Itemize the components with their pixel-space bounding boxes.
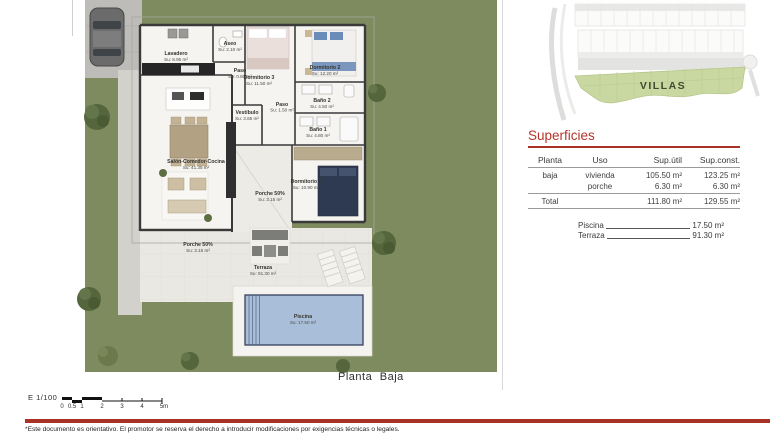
cell-sup-const: 123.25 m² bbox=[682, 171, 740, 180]
bush-icon bbox=[98, 346, 118, 366]
room-area-porche-a: Su: 3.15 m² bbox=[258, 197, 282, 202]
room-area-dormitorio3: Su: 11.50 m² bbox=[246, 81, 272, 86]
cell-uso: porche bbox=[572, 182, 628, 191]
extra-row-terraza: Terraza 91.30 m² bbox=[578, 231, 724, 240]
cell-planta: baja bbox=[528, 171, 572, 180]
room-area-dormitorio1: Su: 10.90 m² bbox=[293, 185, 320, 190]
kitchen-counter bbox=[142, 63, 215, 75]
extra-row-piscina: Piscina 17.50 m² bbox=[578, 221, 724, 230]
scale-tick: 5m bbox=[160, 404, 168, 410]
header-uso: Uso bbox=[572, 155, 628, 165]
scale-label: E 1/100 bbox=[28, 393, 57, 402]
road bbox=[750, 70, 758, 96]
superficies-table: Planta Uso Sup.útil Sup.const. baja vivi… bbox=[528, 152, 740, 209]
room-area-salon: Su: 41.35 m² bbox=[183, 165, 210, 170]
scale-tick: 2 bbox=[100, 404, 103, 410]
total-label: Total bbox=[528, 197, 572, 206]
table-row: baja vivienda 105.50 m² 123.25 m² bbox=[528, 168, 740, 182]
total-sup-const: 129.55 m² bbox=[682, 197, 740, 206]
extra-value: 91.30 m² bbox=[692, 231, 724, 240]
kitchen-island bbox=[166, 88, 210, 110]
footer-divider bbox=[25, 419, 770, 423]
living-room-set bbox=[159, 169, 212, 222]
road bbox=[561, 4, 575, 114]
outdoor-lounge-set bbox=[250, 228, 290, 264]
scale-tick: 0 bbox=[60, 404, 63, 410]
table-total-row: Total 111.80 m² 129.55 m² bbox=[528, 194, 740, 208]
palm-tree-icon bbox=[77, 287, 101, 311]
bed-bedroom3 bbox=[247, 27, 289, 69]
table-divider bbox=[528, 208, 740, 209]
scale-tick: 4 bbox=[140, 404, 143, 410]
superficies-title: Superficies bbox=[528, 128, 740, 148]
cell-sup-util: 105.50 m² bbox=[628, 171, 682, 180]
plot-row-top bbox=[575, 4, 745, 26]
floor-plan: Lavadero Su: 8.95 m² Aseo Su: 2.10 m² Pa… bbox=[0, 0, 505, 392]
palm-tree-icon bbox=[372, 231, 396, 255]
car-icon bbox=[90, 8, 124, 66]
scale-tick: 3 bbox=[120, 404, 123, 410]
bush-icon bbox=[181, 352, 199, 370]
extra-label: Terraza bbox=[578, 231, 605, 240]
leader-line bbox=[606, 228, 691, 229]
room-area-paso2: Su: 1.50 m² bbox=[270, 108, 294, 113]
total-sup-util: 111.80 m² bbox=[628, 197, 682, 206]
header-sup-util: Sup.útil bbox=[628, 155, 682, 165]
cell-uso: vivienda bbox=[572, 171, 628, 180]
extras-list: Piscina 17.50 m² Terraza 91.30 m² bbox=[578, 221, 724, 241]
room-area-dormitorio2: Su: 12.20 m² bbox=[312, 71, 339, 76]
room-area-vestibulo: Su: 3.65 m² bbox=[235, 116, 259, 121]
plan-caption: Planta Baja bbox=[338, 371, 404, 383]
table-header-row: Planta Uso Sup.útil Sup.const. bbox=[528, 152, 740, 167]
scale-bar bbox=[62, 396, 168, 406]
cell-planta bbox=[528, 182, 572, 191]
plan-sheet: Lavadero Su: 8.95 m² Aseo Su: 2.10 m² Pa… bbox=[0, 0, 770, 433]
side-path bbox=[118, 70, 142, 315]
table-row: porche 6.30 m² 6.30 m² bbox=[528, 182, 740, 193]
header-planta: Planta bbox=[528, 155, 572, 165]
room-area-aseo: Su: 2.10 m² bbox=[218, 47, 242, 52]
header-sup-const: Sup.const. bbox=[682, 155, 740, 165]
extra-label: Piscina bbox=[578, 221, 604, 230]
superficies-panel: Superficies Planta Uso Sup.útil Sup.cons… bbox=[528, 128, 740, 209]
extra-value: 17.50 m² bbox=[692, 221, 724, 230]
cell-sup-const: 6.30 m² bbox=[682, 182, 740, 191]
villas-zone-label: VILLAS bbox=[640, 80, 686, 92]
site-plan: VILLAS bbox=[545, 0, 770, 125]
leader-line bbox=[607, 238, 691, 239]
room-area-terraza: Su: 91.30 m² bbox=[250, 271, 277, 276]
plot-row-middle bbox=[578, 30, 743, 58]
room-area-bano2: Su: 4.50 m² bbox=[310, 104, 334, 109]
palm-tree-icon bbox=[84, 104, 110, 130]
cell-sup-util: 6.30 m² bbox=[628, 182, 682, 191]
scale-tick: 0.5 bbox=[68, 404, 76, 410]
kitchen-cabinet-column bbox=[226, 122, 236, 198]
room-area-porche-b: Su: 3.15 m² bbox=[186, 248, 210, 253]
palm-tree-icon bbox=[368, 84, 386, 102]
room-area-piscina: Su: 17.50 m² bbox=[290, 320, 317, 325]
scale-tick: 1 bbox=[80, 404, 83, 410]
room-area-bano1: Su: 4.80 m² bbox=[306, 133, 330, 138]
disclaimer-text: *Este documento es orientativo. El promo… bbox=[25, 426, 400, 433]
room-area-lavadero: Su: 8.95 m² bbox=[164, 57, 188, 62]
